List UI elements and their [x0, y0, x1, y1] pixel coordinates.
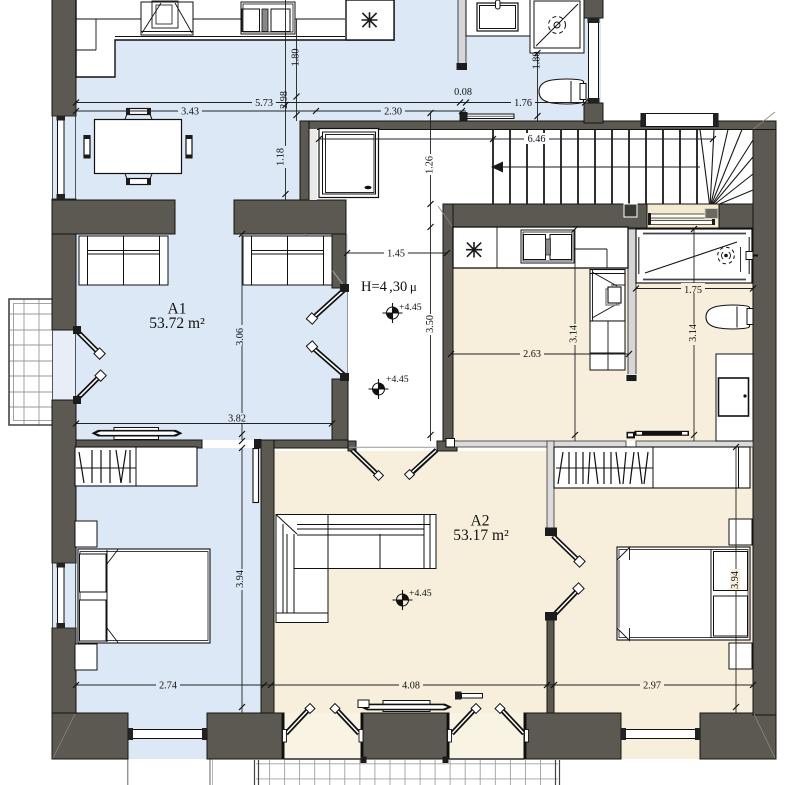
svg-text:2.74: 2.74 — [159, 681, 177, 692]
svg-text:53.72 m²: 53.72 m² — [149, 315, 205, 332]
svg-text:1.26: 1.26 — [425, 156, 436, 174]
svg-text:2.30: 2.30 — [384, 107, 402, 118]
svg-text:+4.45: +4.45 — [409, 588, 432, 599]
svg-text:3.43: 3.43 — [181, 107, 199, 118]
svg-text:2.97: 2.97 — [643, 681, 661, 692]
svg-text:2.98: 2.98 — [279, 91, 290, 109]
svg-text:4.08: 4.08 — [402, 681, 420, 692]
svg-text:2.63: 2.63 — [523, 349, 541, 360]
svg-text:+4.45: +4.45 — [399, 302, 422, 313]
svg-text:3.14: 3.14 — [569, 325, 580, 343]
svg-text:3.50: 3.50 — [425, 315, 436, 333]
svg-text:3.94: 3.94 — [235, 570, 246, 588]
svg-text:3.14: 3.14 — [688, 324, 699, 342]
svg-text:1.80: 1.80 — [532, 52, 543, 70]
svg-text:53.17 m²: 53.17 m² — [453, 527, 509, 544]
svg-text:+4.45: +4.45 — [386, 374, 409, 385]
svg-text:5.73: 5.73 — [255, 98, 273, 109]
svg-text:1.18: 1.18 — [276, 148, 287, 166]
svg-text:H=4 ,30 μ: H=4 ,30 μ — [361, 279, 417, 295]
svg-text:0.08: 0.08 — [454, 87, 472, 98]
svg-text:3.82: 3.82 — [228, 414, 246, 425]
svg-text:3.06: 3.06 — [235, 328, 246, 346]
svg-text:1.45: 1.45 — [387, 249, 405, 260]
svg-text:1.75: 1.75 — [684, 285, 702, 296]
svg-text:6.46: 6.46 — [528, 134, 546, 145]
svg-text:3.94: 3.94 — [730, 571, 741, 589]
svg-text:1.80: 1.80 — [291, 49, 302, 67]
svg-text:1.76: 1.76 — [514, 98, 532, 109]
